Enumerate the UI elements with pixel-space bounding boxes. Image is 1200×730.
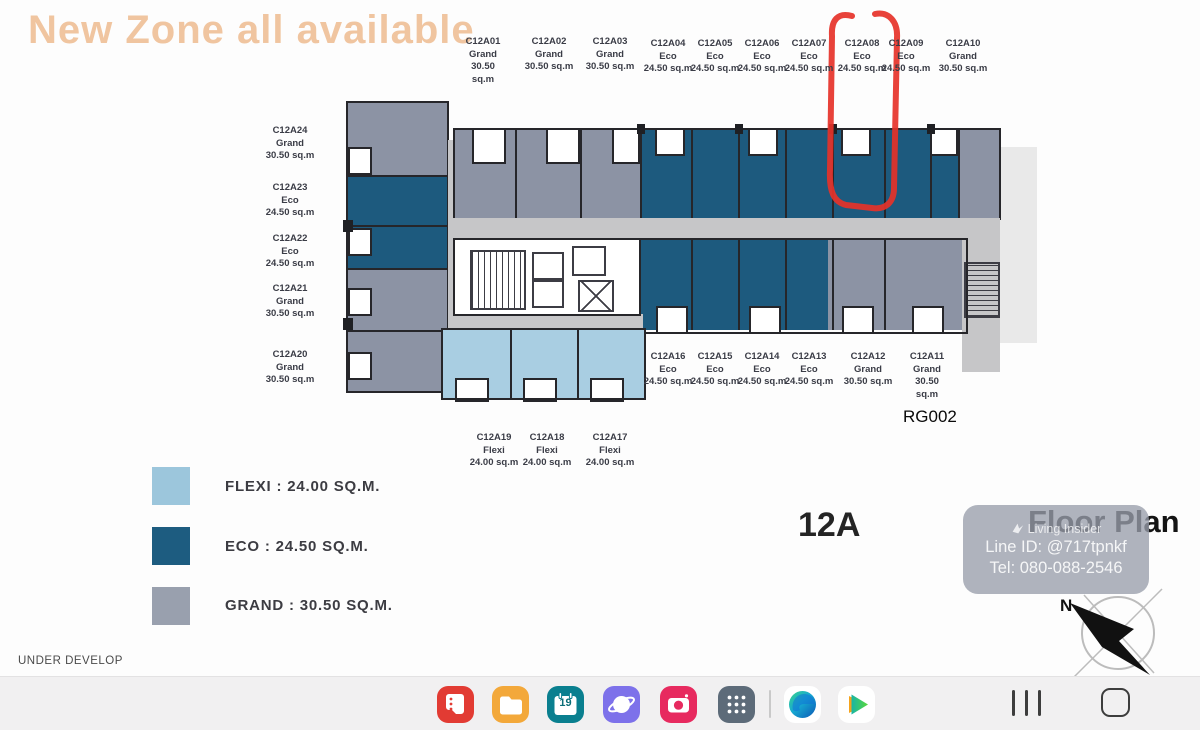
unit-label-c12a10: C12A10Grand30.50 sq.m (931, 38, 995, 76)
watermark-brand: Living Insider (1028, 522, 1102, 536)
legend-label-grand: GRAND : 30.50 SQ.M. (225, 597, 393, 614)
page-title: New Zone all available (28, 8, 475, 53)
home-button[interactable] (1101, 688, 1130, 717)
north-compass-icon: N (1050, 585, 1180, 680)
floor-number: 12A (798, 506, 860, 545)
floorplan-elevator-1 (532, 252, 564, 280)
samsung-internet-icon[interactable] (603, 686, 640, 723)
apps-grid-icon[interactable] (718, 686, 755, 723)
living-insider-logo-icon (1011, 522, 1024, 535)
camera-icon[interactable] (660, 686, 697, 723)
unit-label-c12a13: C12A13Eco24.50 sq.m (777, 351, 841, 389)
red-annotation-circle (818, 2, 918, 227)
edge-browser-icon[interactable] (784, 686, 821, 723)
calendar-day-number: 19 (547, 697, 584, 709)
wetv-play-icon[interactable] (838, 686, 875, 723)
samsung-notes-icon[interactable] (437, 686, 474, 723)
unit-label-c12a12: C12A12Grand30.50 sq.m (836, 351, 900, 389)
legend-label-flexi: FLEXI : 24.00 SQ.M. (225, 478, 380, 495)
floorplan-shaft-x (578, 280, 614, 312)
watermark-line-id: Line ID: @717tpnkf (985, 538, 1127, 557)
unit-label-c12a21: C12A21Grand30.50 sq.m (255, 283, 325, 321)
legend-swatch-eco (152, 527, 190, 565)
watermark: Living Insider Line ID: @717tpnkf Tel: 0… (963, 505, 1149, 594)
unit-label-c12a22: C12A22Eco24.50 sq.m (255, 233, 325, 271)
watermark-tel: Tel: 080-088-2546 (989, 559, 1122, 578)
north-label: N (1060, 596, 1072, 615)
unit-label-c12a20: C12A20Grand30.50 sq.m (255, 349, 325, 387)
unit-label-c12a09: C12A09Eco24.50 sq.m (874, 38, 938, 76)
unit-label-c12a11: C12A11Grand30.50 sq.m (905, 351, 949, 401)
unit-label-c12a02: C12A02Grand30.50 sq.m (517, 36, 581, 74)
floorplan-elevator-2 (532, 280, 564, 308)
unit-label-c12a24: C12A24Grand30.50 sq.m (255, 125, 325, 163)
floorplan-top-wing-grand-right (958, 130, 1000, 218)
taskbar-divider (769, 690, 771, 718)
my-files-icon[interactable] (492, 686, 529, 723)
calendar-icon[interactable]: 19 (547, 686, 584, 723)
floorplan-stairs-core (470, 250, 526, 310)
legend-swatch-grand (152, 587, 190, 625)
floorplan-stairs-right (964, 262, 1000, 318)
floorplan-adjacent-area (1000, 147, 1037, 343)
unit-label-c12a17: C12A17Flexi24.00 sq.m (578, 432, 642, 470)
legend-swatch-flexi (152, 467, 190, 505)
under-develop-label: UNDER DEVELOP (18, 655, 123, 667)
unit-label-c12a03: C12A03Grand30.50 sq.m (578, 36, 642, 74)
rg-code-label: RG002 (903, 407, 957, 427)
legend-label-eco: ECO : 24.50 SQ.M. (225, 538, 369, 555)
unit-label-c12a01: C12A01Grand30.50 sq.m (461, 36, 505, 86)
unit-label-c12a23: C12A23Eco24.50 sq.m (255, 182, 325, 220)
unit-label-c12a18: C12A18Flexi24.00 sq.m (515, 432, 579, 470)
taskbar (0, 676, 1200, 730)
floorplan-shaft (572, 246, 606, 276)
